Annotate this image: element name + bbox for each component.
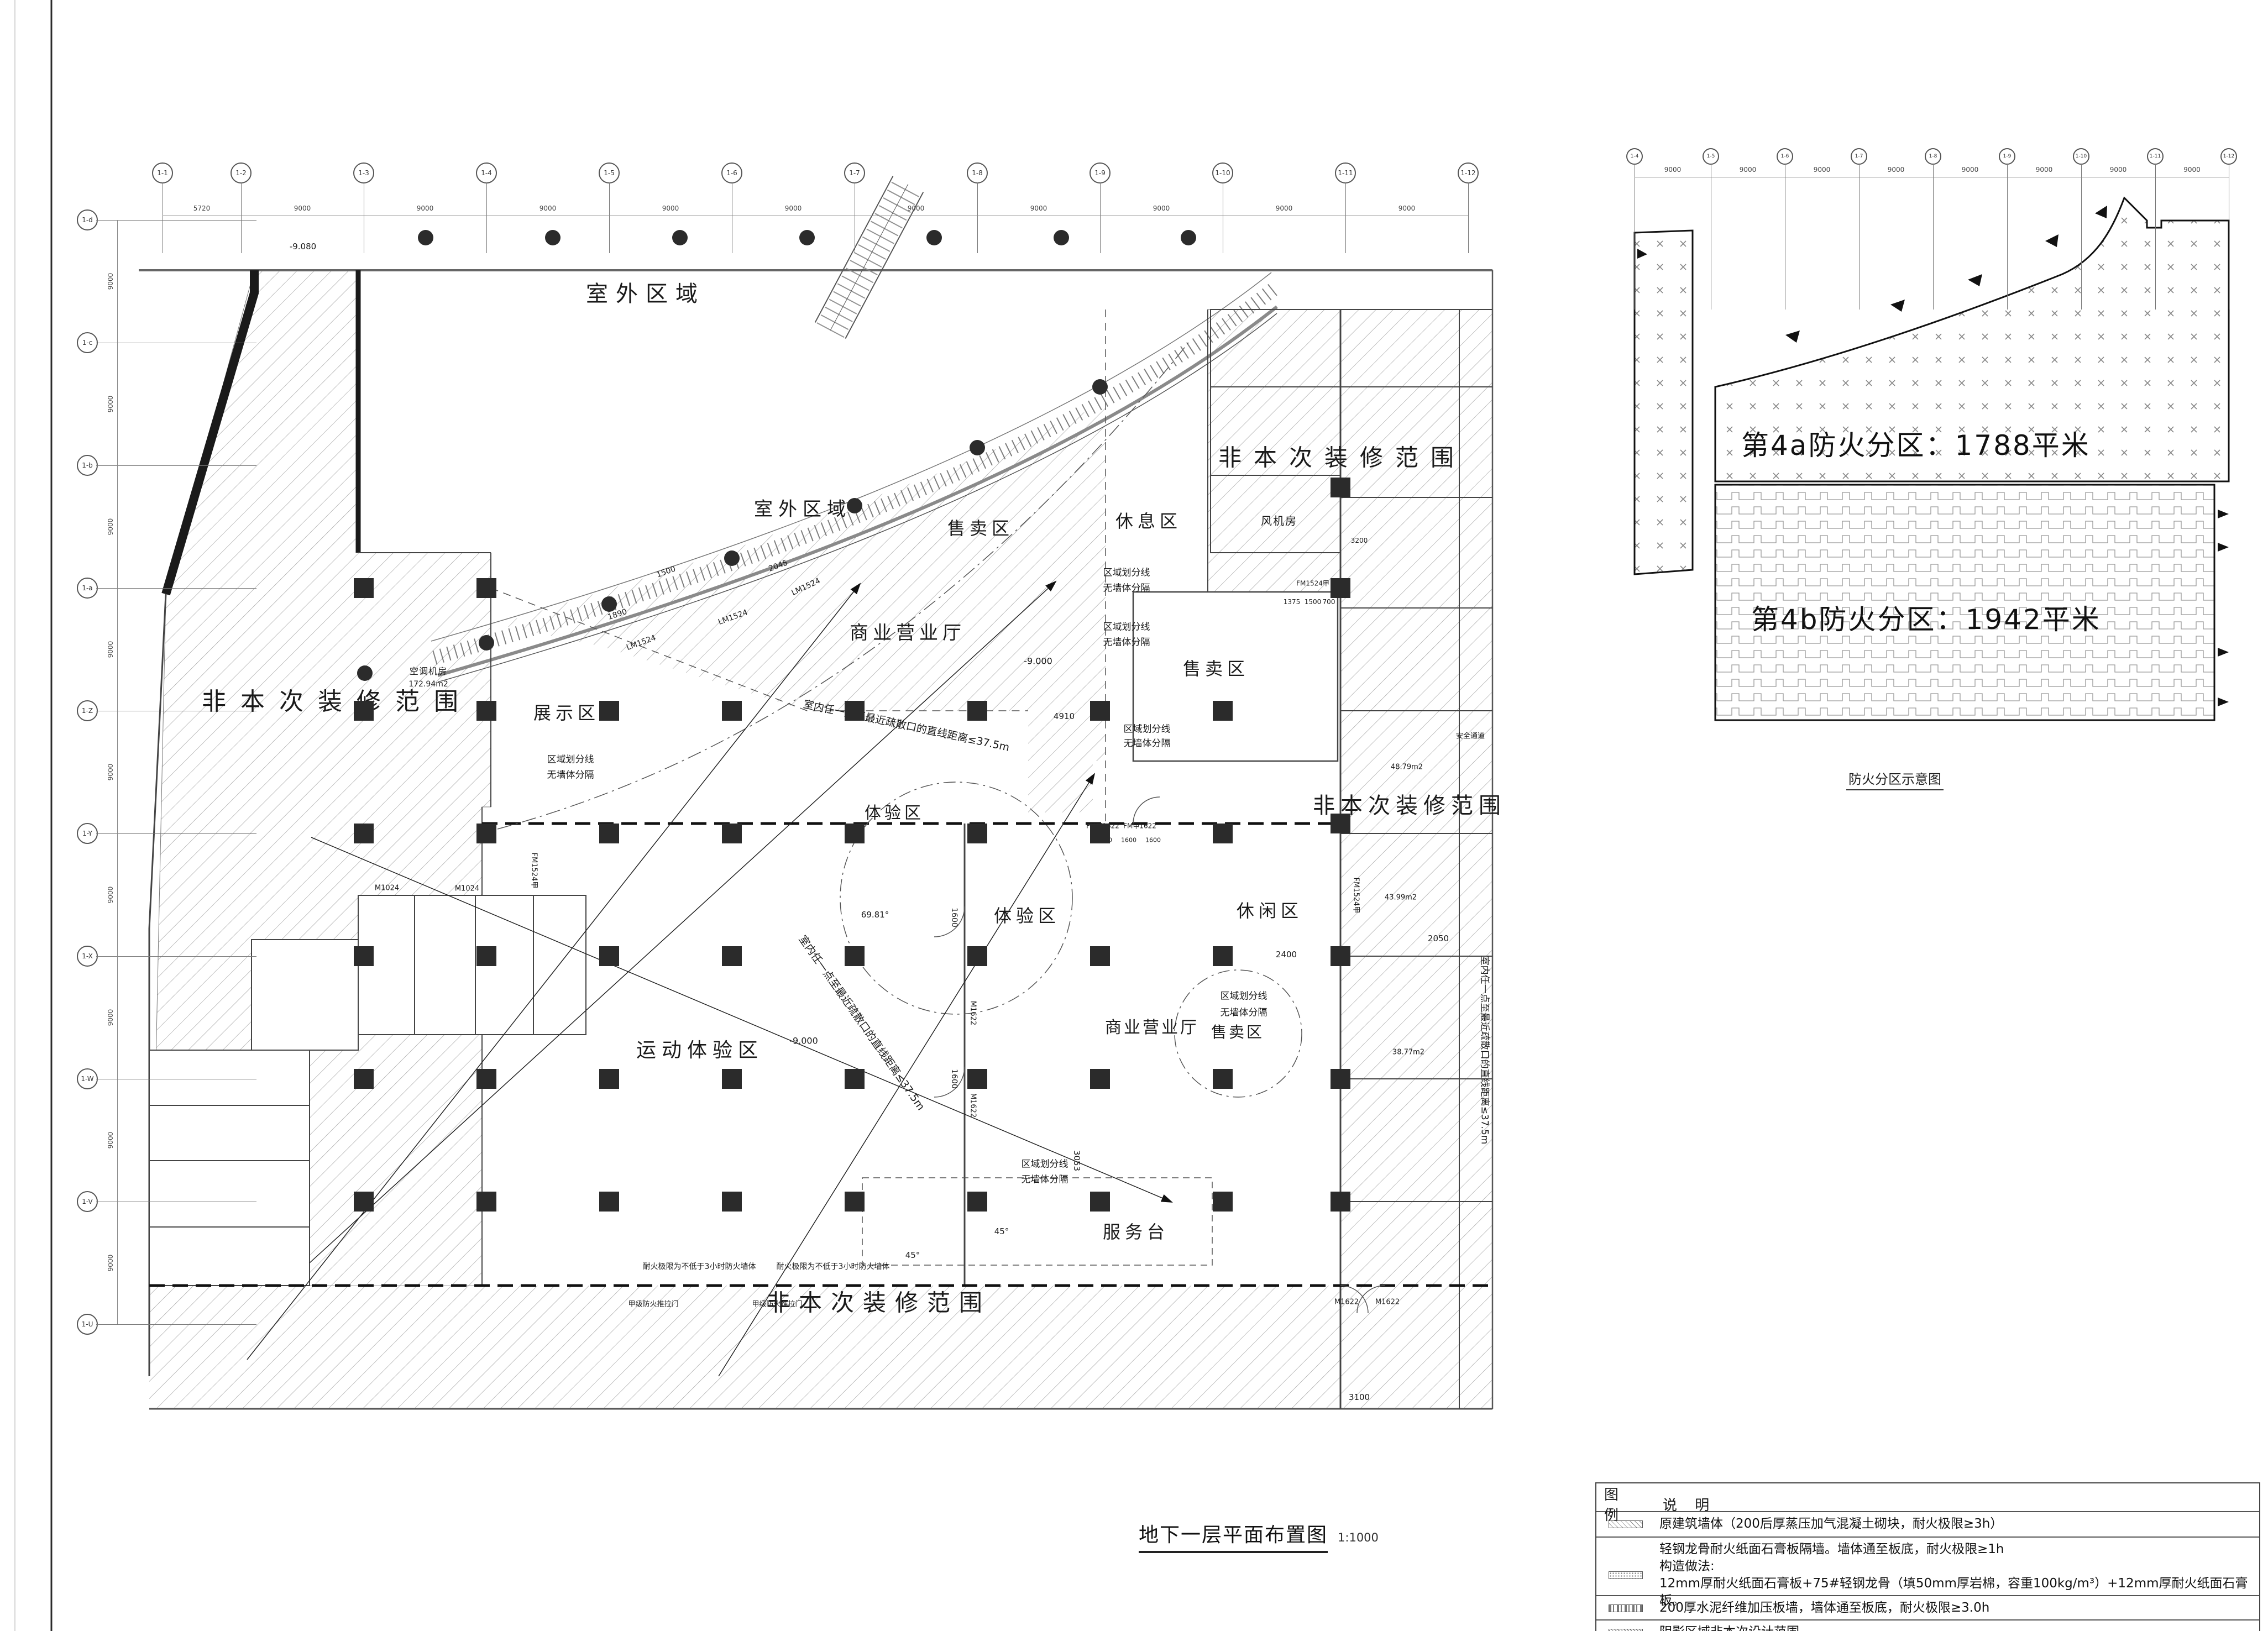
- grid-dim: 9000: [107, 764, 114, 781]
- grid-bubble: 1-9: [1999, 148, 2015, 165]
- column-square: [722, 1069, 742, 1089]
- column-square: [476, 1069, 496, 1089]
- plan-label: 区域划分线: [547, 752, 594, 765]
- grid-dim: 5720: [193, 204, 211, 212]
- grid-bubble: 1-3: [353, 162, 374, 183]
- plan-label: -9.000: [789, 1036, 818, 1046]
- grid-dim: 9000: [908, 204, 925, 212]
- grid-bubble: 1-1: [152, 162, 173, 183]
- plan-label: M1622: [969, 1001, 977, 1025]
- fire-zone-b-label: 第4b防火分区：1942平米: [1751, 597, 2101, 637]
- column-square: [845, 946, 865, 966]
- grid-dim: 9000: [107, 1009, 114, 1026]
- plan-label: 甲级防火推拉门: [628, 1298, 678, 1309]
- column-square: [722, 1192, 742, 1212]
- grid-dim: 9000: [785, 204, 802, 212]
- grid-dim-line: [163, 216, 1468, 216]
- escalator: [815, 176, 924, 339]
- grid-bubble: 1-2: [231, 162, 252, 183]
- plan-label: 休息区: [1115, 507, 1182, 533]
- plan-label: 服务台: [1103, 1218, 1169, 1244]
- grid-stem: [1345, 182, 1346, 253]
- column-round: [847, 498, 862, 513]
- grid-dim: 9000: [1962, 166, 1979, 174]
- column-square: [845, 701, 865, 721]
- column-round: [724, 550, 740, 566]
- plan-label: 1600: [1145, 837, 1161, 844]
- column-round: [1181, 230, 1196, 245]
- plan-label: 无墙体分隔: [1124, 736, 1171, 749]
- legend-header-row: 图 例 说 明: [1596, 1483, 2259, 1512]
- column-square: [967, 1192, 987, 1212]
- grid-dim: 9000: [1153, 204, 1170, 212]
- column-square: [599, 701, 619, 721]
- grid-dim: 9000: [1888, 166, 1905, 174]
- plan-label: M1024: [375, 884, 399, 893]
- legend-desc-cell: 原建筑墙体（200后厚蒸压加气混凝土砌块，耐火极限≥3h）: [1655, 1512, 2259, 1536]
- column-square: [599, 824, 619, 843]
- grid-stem: [732, 182, 732, 253]
- grid-stem: [96, 956, 256, 957]
- plan-label: 耐火极限为不低于3小时防火墙体: [643, 1261, 756, 1272]
- grid-stem: [486, 182, 487, 253]
- grid-dim: 9000: [107, 273, 114, 290]
- plan-label: 商业营业厅: [850, 618, 966, 645]
- grid-stem: [2081, 164, 2082, 310]
- grid-dim: 9000: [107, 1255, 114, 1272]
- grid-stem: [2155, 164, 2156, 310]
- plan-label: 区域划分线: [1103, 619, 1150, 633]
- grid-dim: 9000: [1030, 204, 1047, 212]
- legend-row: 原建筑墙体（200后厚蒸压加气混凝土砌块，耐火极限≥3h）: [1596, 1512, 2259, 1538]
- plan-label: FM甲1622: [1123, 821, 1156, 831]
- grid-dim: 9000: [417, 204, 434, 212]
- grid-dim: 9000: [1740, 166, 1757, 174]
- legend-desc-text: 200厚水泥纤维加压板墙，墙体通至板底，耐火极限≥3.0h: [1655, 1596, 1992, 1620]
- column-square: [1331, 1069, 1350, 1089]
- grid-bubble: 1-12: [2220, 148, 2237, 165]
- plan-label: 45°: [994, 1226, 1009, 1236]
- legend-swatch-cell: [1596, 1620, 1655, 1631]
- drawing-sheet: 室外区域室外区域售卖区休息区商业营业厅售卖区展示区体验区体验区休闲区运动体验区商…: [0, 0, 2268, 1631]
- grid-stem: [96, 1202, 256, 1202]
- grid-bubble: 1-12: [1458, 162, 1479, 183]
- plan-label: M1622: [1375, 1298, 1400, 1307]
- plan-label: 38.77m2: [1392, 1048, 1424, 1057]
- sheet-title: 地下一层平面布置图: [1139, 1519, 1328, 1553]
- column-square: [599, 946, 619, 966]
- column-round: [926, 230, 942, 245]
- plan-label: 非本次装修范围: [1218, 439, 1466, 473]
- column-square: [1090, 701, 1110, 721]
- plan-label: 无墙体分隔: [1221, 1005, 1267, 1019]
- column-square: [354, 824, 374, 843]
- plan-label: 700: [1323, 598, 1335, 606]
- grid-stem: [1468, 182, 1469, 253]
- grid-stem: [2007, 164, 2008, 310]
- grid-stem: [1859, 164, 1860, 310]
- plan-label: 2050: [1428, 934, 1449, 943]
- plan-label: 区域划分线: [1124, 721, 1171, 735]
- grid-dim: 9000: [294, 204, 311, 212]
- grid-dim-line: [117, 220, 118, 1324]
- grid-stem: [1785, 164, 1785, 310]
- grid-bubble: 1-11: [2147, 148, 2164, 165]
- plan-label: FM1524甲: [1296, 579, 1329, 588]
- column-round: [672, 230, 688, 245]
- column-round: [799, 230, 815, 245]
- grid-bubble: 1-11: [1335, 162, 1356, 183]
- plan-label: 体验区: [865, 799, 924, 824]
- grid-bubble: 1-a: [77, 578, 98, 599]
- column-square: [722, 701, 742, 721]
- grid-bubble: 1-10: [1212, 162, 1233, 183]
- plan-label: 运动体验区: [636, 1034, 763, 1063]
- grid-stem: [96, 711, 256, 711]
- legend-desc-cell: 阴影区域非本次设计范围: [1655, 1620, 2259, 1631]
- plan-label: 安全通道: [1456, 730, 1485, 741]
- plan-label: 售卖区: [1211, 1020, 1264, 1042]
- plan-label: FM1524甲: [1352, 878, 1363, 914]
- grid-bubble: 1-Y: [77, 823, 98, 844]
- plan-label: -9.080: [290, 242, 316, 251]
- grid-bubble: 1-6: [721, 162, 742, 183]
- grid-bubble: 1-5: [599, 162, 620, 183]
- column-square: [1213, 1192, 1233, 1212]
- plan-label: 3053: [1072, 1150, 1082, 1171]
- legend-row: 200厚水泥纤维加压板墙，墙体通至板底，耐火极限≥3.0h: [1596, 1596, 2259, 1620]
- column-square: [722, 824, 742, 843]
- plan-label: M1024: [455, 885, 479, 893]
- grid-dim: 9000: [1664, 166, 1682, 174]
- column-square: [1213, 701, 1233, 721]
- grid-dim: 9000: [1814, 166, 1831, 174]
- column-square: [599, 1069, 619, 1089]
- grid-bubble: 1-6: [1777, 148, 1793, 165]
- column-square: [967, 701, 987, 721]
- column-square: [1213, 1069, 1233, 1089]
- plan-label: 1600: [950, 1069, 958, 1089]
- legend-desc-cell: 200厚水泥纤维加压板墙，墙体通至板底，耐火极限≥3.0h: [1655, 1596, 2259, 1620]
- plan-label: 区域划分线: [1221, 988, 1267, 1002]
- grid-bubble: 1-7: [1851, 148, 1867, 165]
- grid-stem: [2229, 164, 2229, 310]
- grid-dim: 9000: [107, 1132, 114, 1149]
- column-square: [1331, 478, 1350, 497]
- legend-table: 图 例 说 明 原建筑墙体（200后厚蒸压加气混凝土砌块，耐火极限≥3h）轻钢龙…: [1595, 1482, 2260, 1631]
- column-square: [1090, 1069, 1110, 1089]
- plan-label: 3200: [1351, 537, 1368, 544]
- grid-dim-line: [1635, 177, 2229, 177]
- plan-label: 1600: [950, 908, 958, 927]
- column-square: [845, 1069, 865, 1089]
- grid-stem: [977, 182, 978, 253]
- plan-label: 172.94m2: [408, 680, 448, 689]
- grid-dim: 9000: [107, 518, 114, 536]
- grid-stem: [96, 220, 256, 221]
- column-square: [845, 824, 865, 843]
- column-square: [845, 1192, 865, 1212]
- plan-label: 售卖区: [947, 515, 1014, 540]
- column-square: [476, 824, 496, 843]
- grid-dim: 9000: [1276, 204, 1293, 212]
- column-square: [1331, 946, 1350, 966]
- grid-stem: [163, 182, 163, 253]
- grid-dim: 9000: [2110, 166, 2127, 174]
- grid-stem: [1933, 164, 1934, 310]
- column-round: [970, 440, 985, 455]
- plan-label: 1375: [1284, 598, 1301, 606]
- fire-zone-a-label: 第4a防火分区：1788平米: [1741, 423, 2091, 463]
- plan-label: 休闲区: [1237, 897, 1303, 922]
- plan-label: 室内任一点至最近疏散口的直线距离≤37.5m: [1479, 956, 1493, 1145]
- plan-label: 1500: [1305, 598, 1322, 606]
- sheet-scale: 1:1000: [1338, 1531, 1379, 1544]
- grid-bubble: 1-8: [1925, 148, 1941, 165]
- grid-stem: [364, 182, 364, 253]
- plan-label: 室外区域: [754, 494, 851, 521]
- legend-header-desc: 说 明: [1655, 1494, 2259, 1514]
- column-round: [601, 596, 617, 612]
- legend-desc-text: 原建筑墙体（200后厚蒸压加气混凝土砌块，耐火极限≥3h）: [1655, 1512, 2005, 1536]
- plan-label: 45°: [905, 1250, 920, 1260]
- grid-stem: [96, 588, 256, 589]
- column-square: [599, 1192, 619, 1212]
- column-round: [479, 635, 494, 651]
- grid-bubble: 1-4: [476, 162, 497, 183]
- column-square: [1090, 1192, 1110, 1212]
- plan-label: 48.79m2: [1391, 763, 1423, 772]
- plan-label: 区域划分线: [1103, 565, 1150, 579]
- grid-stem: [855, 182, 855, 253]
- grid-stem: [1711, 164, 1711, 310]
- column-square: [967, 824, 987, 843]
- column-round: [357, 665, 373, 681]
- plan-label: 展示区: [533, 699, 600, 725]
- column-square: [354, 578, 374, 598]
- legend-swatch: [1609, 1604, 1643, 1612]
- grid-bubble: 1-b: [77, 455, 98, 476]
- grid-dim: 9000: [107, 641, 114, 658]
- sheet-caption: 地下一层平面布置图 1:1000: [1139, 1519, 1379, 1553]
- column-square: [722, 946, 742, 966]
- column-square: [476, 701, 496, 721]
- plan-label: 空调机房: [410, 664, 447, 677]
- plan-label: 室外区域: [586, 276, 705, 308]
- plan-label: 无墙体分隔: [1103, 580, 1150, 594]
- grid-dim: 9000: [662, 204, 679, 212]
- grid-bubble: 1-4: [1626, 148, 1643, 165]
- column-square: [1213, 824, 1233, 843]
- grid-dim: 9000: [1398, 204, 1416, 212]
- column-round: [418, 230, 433, 245]
- plan-label: 甲级防火推拉门: [752, 1298, 802, 1309]
- plan-label: 4910: [1054, 711, 1075, 721]
- grid-stem: [1635, 164, 1635, 310]
- grid-dim: 9000: [2183, 166, 2201, 174]
- grid-bubble: 1-V: [77, 1191, 98, 1212]
- column-square: [476, 946, 496, 966]
- column-square: [967, 946, 987, 966]
- column-square: [1331, 814, 1350, 833]
- grid-bubble: 1-c: [77, 332, 98, 353]
- plan-label: 无墙体分隔: [1103, 634, 1150, 648]
- legend-row: 阴影区域非本次设计范围: [1596, 1620, 2259, 1631]
- column-round: [1054, 230, 1069, 245]
- plan-label: 风机房: [1261, 512, 1297, 528]
- plan-label: 体验区: [994, 902, 1060, 927]
- fire-diagram-caption: 防火分区示意图: [1846, 768, 1944, 790]
- grid-stem: [609, 182, 610, 253]
- column-square: [476, 578, 496, 598]
- floor-plan-svg: [0, 0, 2268, 1631]
- grid-bubble: 1-10: [2073, 148, 2089, 165]
- grid-bubble: 1-X: [77, 946, 98, 967]
- legend-desc-text: 阴影区域非本次设计范围: [1655, 1620, 1801, 1631]
- legend-row: 轻钢龙骨耐火纸面石膏板隔墙。墙体通至板底，耐火极限≥1h构造做法:12mm厚耐火…: [1596, 1538, 2259, 1596]
- grid-bubble: 1-d: [77, 209, 98, 230]
- column-square: [1331, 1192, 1350, 1212]
- plan-label: M1622: [969, 1093, 977, 1118]
- plan-label: 售卖区: [1183, 655, 1249, 680]
- grid-dim: 9000: [2036, 166, 2053, 174]
- plan-label: 耐火极限为不低于3小时防火墙体: [777, 1261, 890, 1272]
- grid-bubble: 1-W: [77, 1068, 98, 1089]
- column-round: [545, 230, 561, 245]
- plan-label: 区域划分线: [1022, 1156, 1068, 1170]
- grid-bubble: 1-U: [77, 1314, 98, 1335]
- plan-label: 商业营业厅: [1105, 1014, 1199, 1038]
- grid-stem: [96, 1324, 256, 1325]
- column-square: [354, 701, 374, 721]
- column-square: [1331, 578, 1350, 598]
- grid-stem: [241, 182, 242, 253]
- column-square: [1090, 946, 1110, 966]
- grid-dim: 9000: [539, 204, 557, 212]
- grid-stem: [96, 1079, 256, 1079]
- grid-stem: [1223, 182, 1223, 253]
- plan-label: 无墙体分隔: [1022, 1172, 1068, 1186]
- grid-bubble: 1-7: [844, 162, 865, 183]
- grid-bubble: 1-9: [1090, 162, 1111, 183]
- grid-bubble: 1-5: [1703, 148, 1719, 165]
- legend-swatch: [1609, 1629, 1643, 1631]
- grid-stem: [1100, 182, 1101, 253]
- grid-stem: [96, 465, 256, 466]
- region-division-lines: [491, 310, 1302, 1265]
- sheet-border: [15, 0, 51, 1631]
- column-square: [354, 946, 374, 966]
- plan-label: 69.81°: [861, 910, 889, 920]
- plan-label: FM1524甲: [530, 853, 541, 889]
- plan-label: 2400: [1276, 950, 1297, 959]
- column-square: [1213, 946, 1233, 966]
- legend-swatch-cell: [1596, 1596, 1655, 1620]
- column-round: [1092, 379, 1108, 395]
- column-square: [967, 1069, 987, 1089]
- plan-label: -9.000: [1024, 656, 1052, 667]
- plan-label: 1600: [1121, 837, 1136, 844]
- legend-swatch: [1609, 1520, 1643, 1528]
- grid-bubble: 1-8: [967, 162, 988, 183]
- column-square: [354, 1192, 374, 1212]
- column-square: [1090, 824, 1110, 843]
- plan-label: 3100: [1349, 1392, 1370, 1402]
- column-square: [476, 1192, 496, 1212]
- grid-dim: 9000: [107, 396, 114, 413]
- grid-stem: [96, 343, 256, 343]
- legend-swatch-cell: [1596, 1512, 1655, 1536]
- grid-bubble: 1-Z: [77, 700, 98, 721]
- grid-stem: [96, 833, 256, 834]
- column-square: [354, 1069, 374, 1089]
- legend-swatch: [1609, 1571, 1643, 1579]
- grid-dim: 9000: [107, 887, 114, 904]
- plan-label: 43.99m2: [1385, 894, 1417, 902]
- plan-label: 无墙体分隔: [547, 767, 594, 781]
- plan-label: M1622: [1334, 1298, 1359, 1307]
